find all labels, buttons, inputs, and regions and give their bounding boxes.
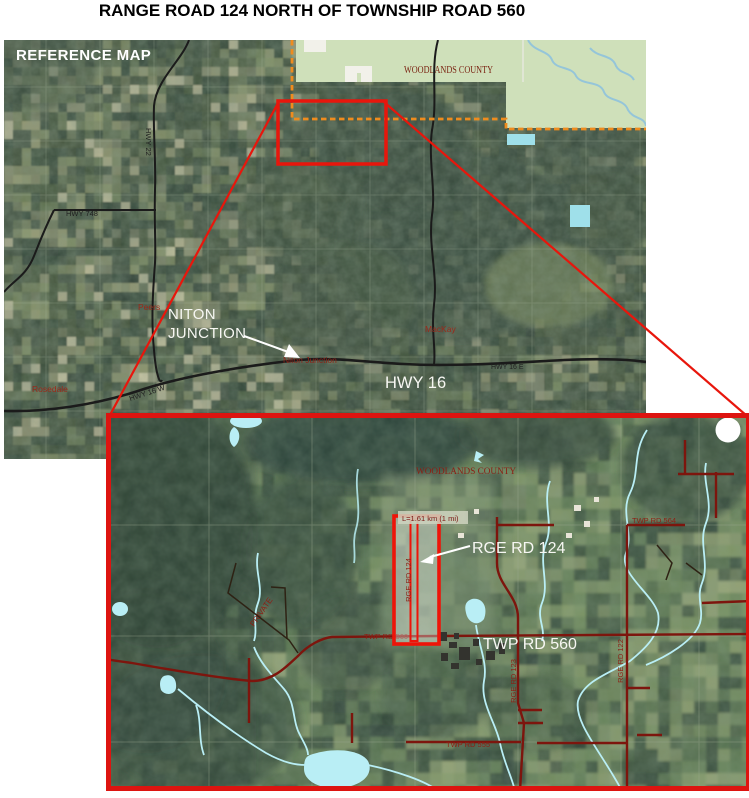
svg-text:RGE RD 124: RGE RD 124 xyxy=(404,558,413,602)
svg-text:TWP RD 555: TWP RD 555 xyxy=(446,740,490,749)
svg-text:L=1.61 km (1 mi): L=1.61 km (1 mi) xyxy=(402,514,459,523)
svg-text:RGE RD 124: RGE RD 124 xyxy=(472,540,565,557)
svg-text:TWP RD 564: TWP RD 564 xyxy=(632,516,676,525)
svg-text:WOODLANDS COUNTY: WOODLANDS COUNTY xyxy=(416,467,516,477)
svg-text:RGE RD 122: RGE RD 122 xyxy=(616,639,625,683)
svg-text:TWP RD 560: TWP RD 560 xyxy=(483,636,577,653)
svg-text:RGE RD 123: RGE RD 123 xyxy=(509,659,518,703)
